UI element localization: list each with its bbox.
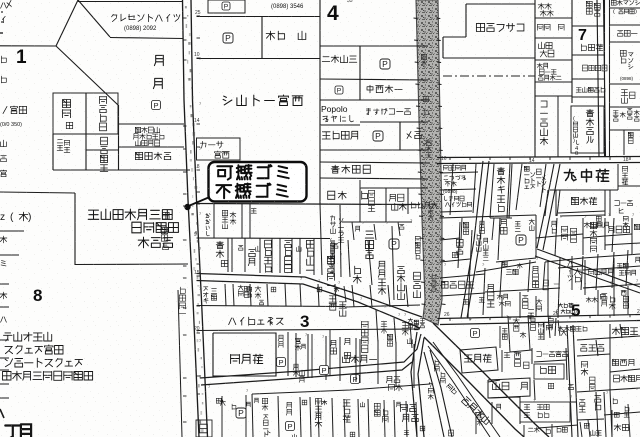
svg-text:P: P [472, 329, 477, 338]
svg-text:(: ( [556, 309, 558, 315]
svg-text:): ) [575, 309, 577, 315]
